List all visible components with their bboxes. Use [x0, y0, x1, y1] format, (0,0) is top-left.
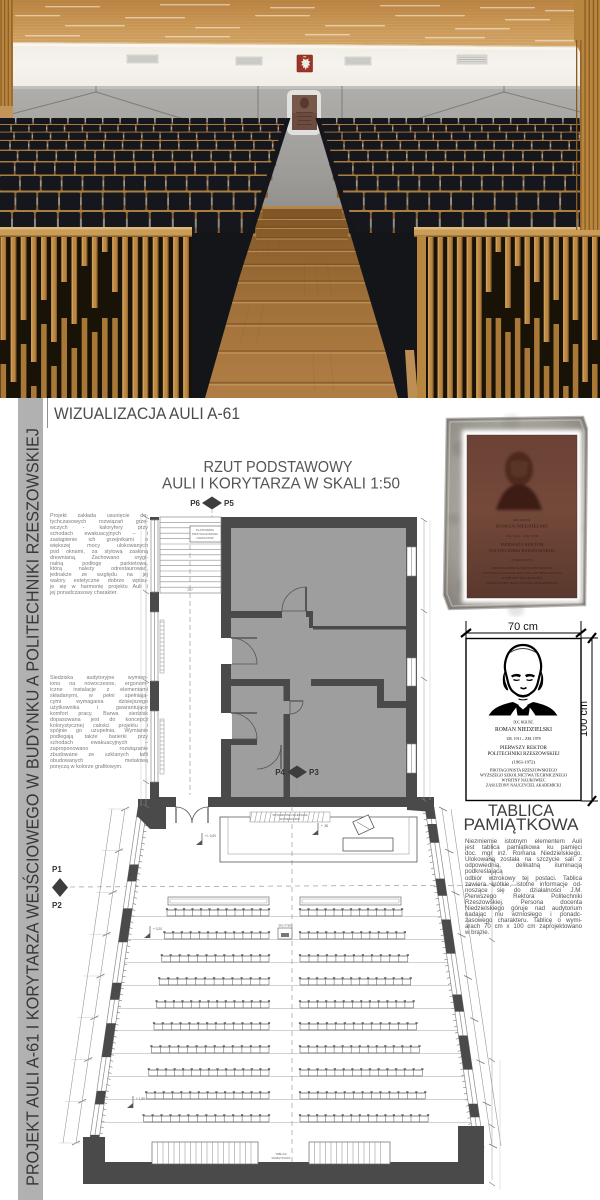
svg-text:ZASŁUŻONY NAUCZYCIEL AKADEMICK: ZASŁUŻONY NAUCZYCIEL AKADEMICKI	[487, 582, 557, 585]
svg-text:PIERWSZY REKTOR: PIERWSZY REKTOR	[501, 543, 545, 547]
svg-text:RZUT PODSTAWOWY: RZUT PODSTAWOWY	[204, 459, 353, 476]
svg-text:ZASŁUŻONY NAUCZYCIEL AKADEMICK: ZASŁUŻONY NAUCZYCIEL AKADEMICKI	[486, 783, 562, 788]
svg-text:AULI I KORYTARZA W SKALI 1:50: AULI I KORYTARZA W SKALI 1:50	[162, 476, 400, 493]
svg-text:WIZUALIZACJA AULI A-61: WIZUALIZACJA AULI A-61	[54, 404, 240, 423]
svg-text:(1963-1972): (1963-1972)	[512, 760, 536, 765]
svg-text:DOC. MGR INŻ.: DOC. MGR INŻ.	[513, 517, 531, 522]
svg-text:PROTAGONISTA RZESZOWSKIEGO: PROTAGONISTA RZESZOWSKIEGO	[492, 567, 553, 570]
svg-text:POLITECHNIKI RZESZOWSKIEJ: POLITECHNIKI RZESZOWSKIEJ	[488, 751, 560, 757]
svg-text:ROMAN NIEDZIELSKI: ROMAN NIEDZIELSKI	[495, 726, 552, 733]
svg-text:ROMAN NIEDZIELSKI: ROMAN NIEDZIELSKI	[496, 524, 549, 529]
svg-text:PROJEKT AULI A-61 I KORYTARZA: PROJEKT AULI A-61 I KORYTARZA WEJŚCIOWEG…	[22, 428, 43, 1186]
svg-text:PAMIĄTKOWA: PAMIĄTKOWA	[464, 816, 579, 834]
svg-text:POLITECHNIKI RZESZOWSKIEJ: POLITECHNIKI RZESZOWSKIEJ	[489, 549, 556, 553]
svg-text:WYBITNY NAUKOWIEC: WYBITNY NAUKOWIEC	[502, 577, 543, 580]
svg-text:PROTAGONISTA RZESZOWSKIEGO: PROTAGONISTA RZESZOWSKIEGO	[490, 769, 557, 773]
svg-text:UR. 1911 – ZM. 1978: UR. 1911 – ZM. 1978	[506, 534, 538, 538]
svg-text:WYŻSZEGO SZKOLNICTWA TECHNICZN: WYŻSZEGO SZKOLNICTWA TECHNICZNEGO	[480, 773, 567, 778]
svg-text:DOC. MGR INŻ.: DOC. MGR INŻ.	[514, 720, 534, 725]
svg-text:70 cm: 70 cm	[508, 621, 538, 633]
svg-text:WYŻSZEGO SZKOLNICTWA TECHNICZN: WYŻSZEGO SZKOLNICTWA TECHNICZNEGO	[482, 572, 562, 575]
svg-text:WYBITNY NAUKOWIEC: WYBITNY NAUKOWIEC	[502, 779, 546, 783]
svg-text:(1963-1972): (1963-1972)	[512, 558, 533, 562]
svg-text:UR. 1911 – ZM. 1978: UR. 1911 – ZM. 1978	[507, 736, 542, 741]
